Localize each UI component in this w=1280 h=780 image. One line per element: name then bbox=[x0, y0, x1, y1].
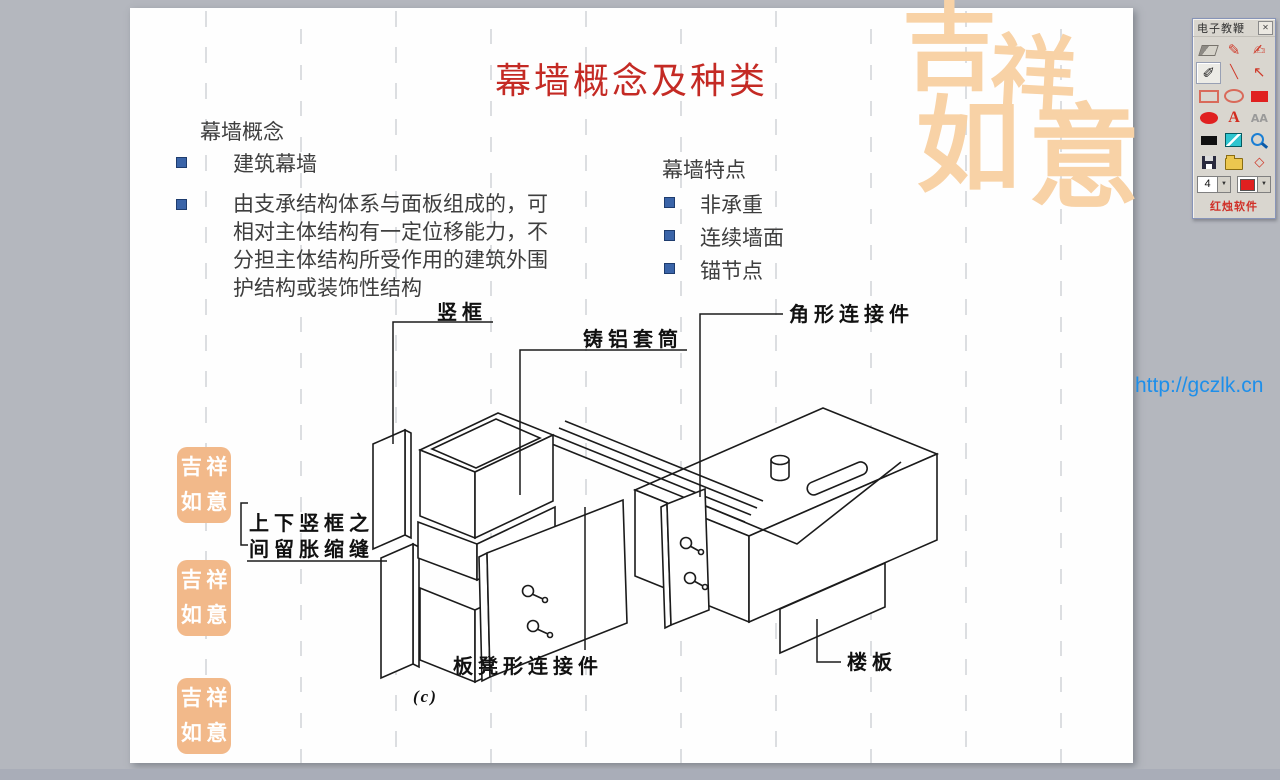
feature-item: 锚节点 bbox=[700, 255, 763, 285]
figure-caption: (c) bbox=[413, 687, 438, 706]
seal-stamp: 吉祥 如意 bbox=[177, 560, 231, 636]
feature-item: 连续墙面 bbox=[700, 222, 784, 252]
bench-connector-plate bbox=[479, 500, 627, 681]
label-sleeve: 铸铝套筒 bbox=[583, 327, 683, 351]
color-value bbox=[1238, 177, 1257, 192]
slide-title: 幕墙概念及种类 bbox=[130, 52, 1133, 104]
label-expansion-line2: 间留胀缩缝 bbox=[249, 537, 374, 561]
pen-size-select[interactable]: 4 ▼ bbox=[1197, 176, 1231, 193]
bullet-icon bbox=[176, 199, 187, 210]
color-select[interactable]: ▼ bbox=[1237, 176, 1271, 193]
text-double-tool-button[interactable]: AA bbox=[1247, 108, 1272, 128]
bullet-icon bbox=[176, 157, 187, 168]
chevron-down-icon[interactable]: ▼ bbox=[1217, 177, 1230, 192]
tool-grid: ✎ ✍ ✐ ╲ ↖ A AA ◇ bbox=[1193, 37, 1275, 173]
brush-icon: ✍ bbox=[1253, 43, 1266, 58]
filled-ellipse-tool-button[interactable] bbox=[1196, 108, 1221, 128]
toolbar-brand: 红烛软件 bbox=[1193, 198, 1275, 214]
color-swatch bbox=[1240, 179, 1255, 191]
toolbar-titlebar[interactable]: 电子教鞭 ✕ bbox=[1193, 19, 1275, 37]
bottom-strip bbox=[0, 769, 1280, 780]
annotation-toolbar: 电子教鞭 ✕ ✎ ✍ ✐ ╲ ↖ A AA ◇ 4 ▼ ▼ 红烛软件 bbox=[1192, 18, 1276, 219]
filled-rectangle-icon bbox=[1251, 91, 1268, 102]
black-color-icon bbox=[1201, 136, 1217, 145]
text-icon: A bbox=[1228, 110, 1240, 126]
label-angle-connector: 角形连接件 bbox=[789, 302, 914, 326]
slab-edge-plate bbox=[661, 489, 709, 628]
save-icon bbox=[1202, 156, 1216, 169]
close-icon[interactable]: ✕ bbox=[1258, 21, 1273, 35]
eraser-tool-button[interactable] bbox=[1196, 40, 1221, 60]
screen-icon bbox=[1225, 133, 1242, 147]
toolbar-title: 电子教鞭 bbox=[1197, 20, 1258, 36]
feature-item: 非承重 bbox=[700, 189, 763, 219]
pen-tool-button[interactable]: ✎ bbox=[1221, 40, 1246, 60]
screen-tool-button[interactable] bbox=[1221, 130, 1246, 150]
save-button[interactable] bbox=[1196, 152, 1221, 172]
label-expansion-line1: 上下竖框之 bbox=[249, 511, 374, 535]
pen-size-value: 4 bbox=[1198, 177, 1217, 192]
rectangle-tool-button[interactable] bbox=[1196, 86, 1221, 106]
concept-item-2: 由支承结构体系与面板组成的，可相对主体结构有一定位移能力，不分担主体结构所受作用… bbox=[233, 190, 549, 302]
eraser-icon bbox=[1198, 45, 1219, 56]
seal-stamp: 吉祥 如意 bbox=[177, 678, 231, 754]
label-mullion: 竖框 bbox=[437, 300, 487, 324]
concept-heading: 幕墙概念 bbox=[200, 116, 284, 146]
line-tool-button[interactable]: ╲ bbox=[1221, 62, 1246, 82]
presentation-slide: 吉 祥 如 意 吉祥 如意 吉祥 如意 吉祥 如意 幕墙概念及种类 幕墙概念 建… bbox=[130, 8, 1133, 763]
watermark-char: 意 bbox=[1028, 104, 1140, 216]
filled-rectangle-tool-button[interactable] bbox=[1247, 86, 1272, 106]
chevron-down-icon[interactable]: ▼ bbox=[1257, 177, 1270, 192]
bullet-icon bbox=[664, 197, 675, 208]
arrow-icon: ↖ bbox=[1253, 65, 1266, 80]
desktop: { "window": { "bg_color": "#b4b7be", "ac… bbox=[0, 0, 1280, 780]
concept-item-1: 建筑幕墙 bbox=[233, 148, 317, 178]
bullet-icon bbox=[664, 230, 675, 241]
site-url-link[interactable]: http://gczlk.cn bbox=[1135, 374, 1263, 398]
diamond-icon: ◇ bbox=[1254, 156, 1264, 169]
bullet-icon bbox=[664, 263, 675, 274]
open-folder-icon bbox=[1225, 158, 1243, 170]
black-color-button[interactable] bbox=[1196, 130, 1221, 150]
open-button[interactable] bbox=[1221, 152, 1246, 172]
rectangle-icon bbox=[1199, 90, 1219, 103]
toolbar-combos: 4 ▼ ▼ bbox=[1193, 173, 1275, 195]
seal-stamp: 吉祥 如意 bbox=[177, 447, 231, 523]
filled-ellipse-icon bbox=[1200, 112, 1218, 124]
draw-pen-icon: ✐ bbox=[1202, 66, 1215, 81]
line-icon: ╲ bbox=[1230, 66, 1238, 79]
arrow-tool-button[interactable]: ↖ bbox=[1247, 62, 1272, 82]
brush-tool-button[interactable]: ✍ bbox=[1247, 40, 1272, 60]
label-floor-slab: 楼板 bbox=[847, 650, 897, 674]
pen-icon: ✎ bbox=[1228, 43, 1241, 58]
ellipse-icon bbox=[1224, 89, 1244, 103]
diamond-tool-button[interactable]: ◇ bbox=[1247, 152, 1272, 172]
zoom-icon bbox=[1251, 133, 1264, 146]
zoom-tool-button[interactable] bbox=[1247, 130, 1272, 150]
text-tool-button[interactable]: A bbox=[1221, 108, 1246, 128]
text-double-icon: AA bbox=[1251, 113, 1268, 124]
watermark-char: 如 bbox=[916, 96, 1020, 200]
draw-pen-tool-button[interactable]: ✐ bbox=[1196, 62, 1221, 84]
ellipse-tool-button[interactable] bbox=[1221, 86, 1246, 106]
label-bench-connector: 板凳形连接件 bbox=[453, 654, 603, 678]
features-heading: 幕墙特点 bbox=[662, 154, 746, 184]
curtain-wall-detail-diagram: 竖框 铸铝套筒 角形连接件 上下竖框之 间留胀缩缝 板凳形连接件 楼板 (c) bbox=[235, 292, 940, 712]
